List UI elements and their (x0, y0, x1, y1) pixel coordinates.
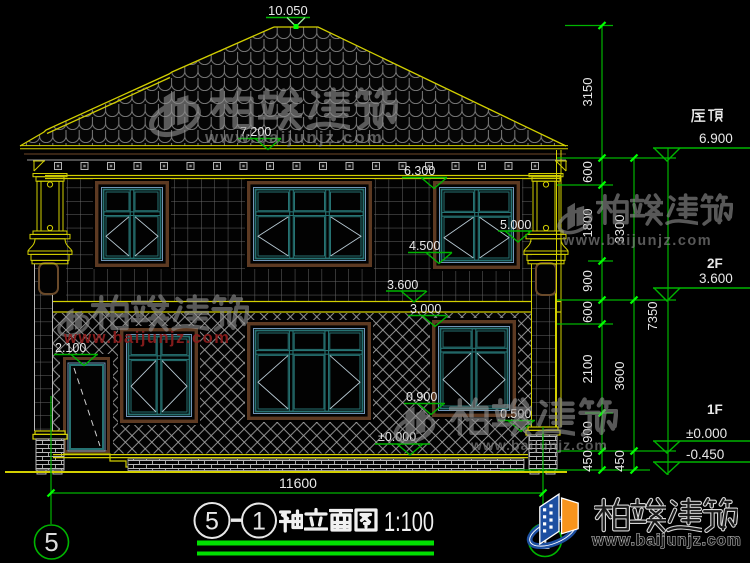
svg-text:3150: 3150 (580, 78, 595, 107)
svg-text:0.900: 0.900 (406, 390, 437, 404)
svg-text:2F: 2F (707, 256, 723, 271)
svg-text:600: 600 (580, 161, 595, 183)
svg-text:900: 900 (580, 270, 595, 292)
svg-text:1:100: 1:100 (384, 506, 434, 537)
svg-text:±0.000: ±0.000 (686, 426, 727, 441)
svg-text:3.600: 3.600 (387, 278, 418, 292)
svg-text:600: 600 (580, 301, 595, 323)
svg-text:-0.450: -0.450 (686, 447, 724, 462)
svg-text:11600: 11600 (279, 475, 317, 491)
svg-text:450: 450 (612, 450, 627, 472)
svg-text:5: 5 (205, 508, 219, 536)
svg-text:450: 450 (580, 450, 595, 472)
svg-text:3.000: 3.000 (410, 302, 441, 316)
svg-text:5: 5 (44, 527, 58, 557)
svg-text:4.500: 4.500 (409, 239, 440, 253)
svg-text:3.600: 3.600 (699, 271, 733, 286)
svg-text:3600: 3600 (612, 362, 627, 391)
svg-text:6.900: 6.900 (699, 131, 733, 146)
svg-text:6.300: 6.300 (404, 164, 435, 178)
svg-text:www.baijunjz.com: www.baijunjz.com (63, 329, 230, 347)
svg-text:5.000: 5.000 (500, 218, 531, 232)
svg-text:www.baijunjz.com: www.baijunjz.com (562, 233, 712, 249)
svg-text:www.baijunjz.com: www.baijunjz.com (591, 532, 742, 549)
svg-text:www.baijunjz.com: www.baijunjz.com (470, 437, 608, 453)
svg-text:10.050: 10.050 (268, 3, 308, 18)
svg-text:7350: 7350 (645, 302, 660, 331)
svg-text:1: 1 (252, 508, 266, 536)
svg-text:2100: 2100 (580, 355, 595, 384)
svg-text:1F: 1F (707, 402, 723, 417)
svg-text:www.baijunjz.com: www.baijunjz.com (204, 128, 384, 147)
